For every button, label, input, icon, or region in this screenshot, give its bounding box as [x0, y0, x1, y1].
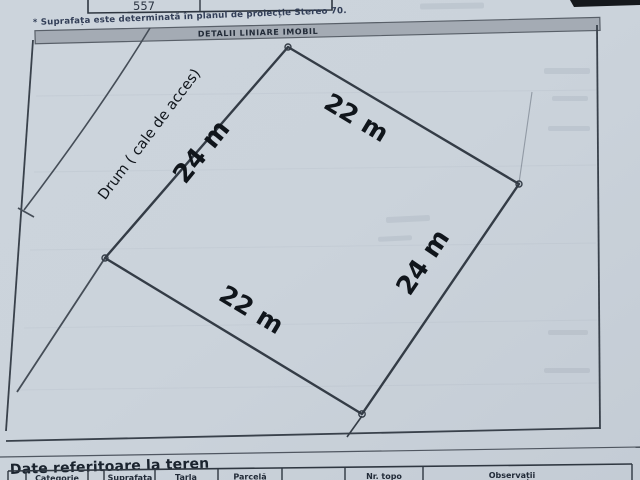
upper-table-cell-value: 557 [133, 0, 155, 13]
land-table-header: Nr. topo [366, 472, 402, 480]
land-table-header: Observații [489, 471, 536, 480]
scanned-cadastral-document: 557 * Suprafața este determinată în plan… [0, 0, 640, 480]
land-table-header: Parcelă [233, 473, 266, 480]
land-table-header: Tarla [175, 473, 197, 480]
land-table-header: Suprafata [108, 474, 153, 480]
land-table-header: Categorie [35, 474, 79, 480]
document-scan-canvas: 557 * Suprafața este determinată în plan… [0, 0, 640, 480]
